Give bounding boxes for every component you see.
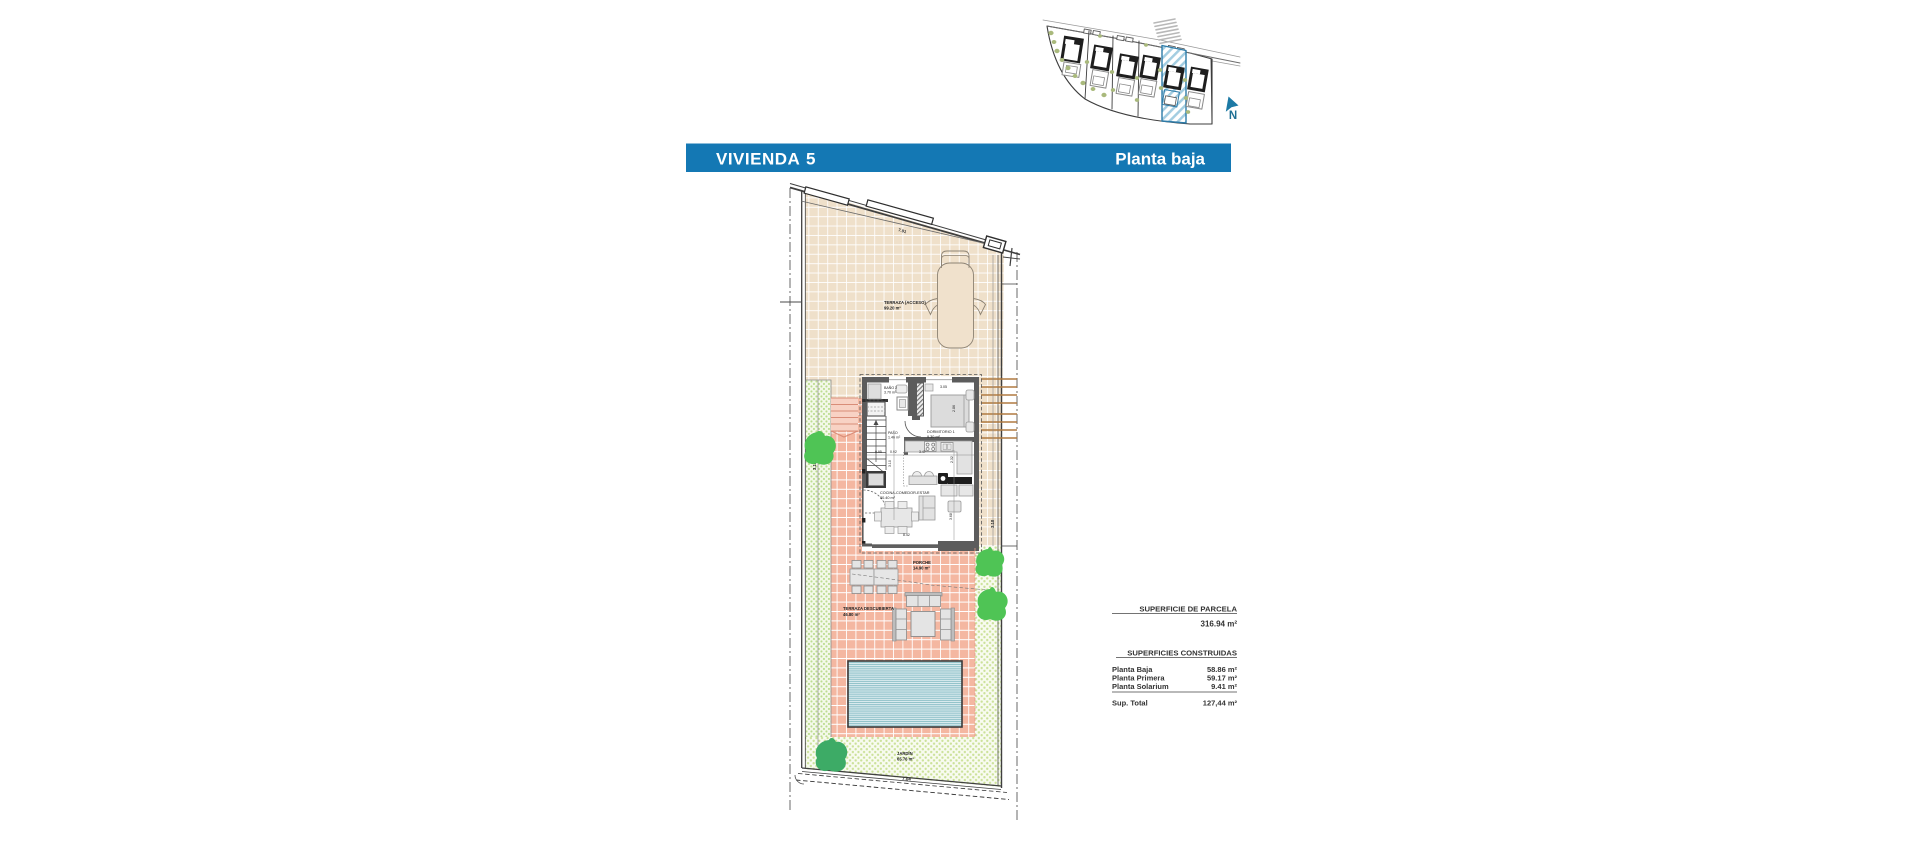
svg-text:Planta Solarium: Planta Solarium <box>1112 682 1169 691</box>
svg-text:SUPERFICIE DE PARCELA: SUPERFICIE DE PARCELA <box>1139 605 1237 614</box>
svg-text:8.42: 8.42 <box>903 533 910 537</box>
svg-text:Planta baja: Planta baja <box>1115 150 1205 169</box>
svg-text:JARDÍN: JARDÍN <box>897 751 913 756</box>
svg-text:9.41 m²: 9.41 m² <box>1211 682 1237 691</box>
svg-text:TERRAZA DESCUBIERTA: TERRAZA DESCUBIERTA <box>843 606 894 611</box>
svg-text:316.94 m²: 316.94 m² <box>1201 620 1238 629</box>
svg-text:3.05: 3.05 <box>940 385 947 389</box>
svg-text:46.80 m²: 46.80 m² <box>843 612 860 617</box>
svg-text:3.10: 3.10 <box>888 460 892 467</box>
svg-text:65.76 m²: 65.76 m² <box>897 757 914 762</box>
svg-text:PORCHE: PORCHE <box>913 560 931 565</box>
svg-text:PASO: PASO <box>888 431 898 435</box>
svg-text:0.92: 0.92 <box>890 450 897 454</box>
svg-text:2.86: 2.86 <box>952 405 956 412</box>
svg-text:SUPERFICIES CONSTRUIDAS: SUPERFICIES CONSTRUIDAS <box>1127 649 1237 658</box>
svg-text:14.90 m²: 14.90 m² <box>913 566 930 571</box>
svg-text:5: 5 <box>806 150 815 169</box>
svg-text:7.04: 7.04 <box>902 776 912 782</box>
svg-text:3.68: 3.68 <box>949 513 953 520</box>
svg-text:N: N <box>1229 110 1237 122</box>
svg-text:3.70 m²: 3.70 m² <box>884 391 897 395</box>
svg-text:BAÑO 2: BAÑO 2 <box>884 385 897 390</box>
svg-text:Sup. Total: Sup. Total <box>1112 699 1148 708</box>
svg-text:1.46 m²: 1.46 m² <box>888 436 901 440</box>
svg-text:COCINA-COMEDOR-ESTAR: COCINA-COMEDOR-ESTAR <box>880 491 930 495</box>
svg-text:99.20 m²: 99.20 m² <box>884 306 901 311</box>
svg-text:30.40 m²: 30.40 m² <box>880 496 896 500</box>
svg-text:9.30 m²: 9.30 m² <box>927 435 941 439</box>
svg-text:127,44 m²: 127,44 m² <box>1203 699 1238 708</box>
svg-text:0.95: 0.95 <box>875 450 882 454</box>
svg-text:TERRAZA (ACCESO): TERRAZA (ACCESO) <box>884 300 926 305</box>
svg-text:3.47: 3.47 <box>919 450 926 454</box>
svg-text:3.18: 3.18 <box>990 519 995 528</box>
svg-text:DORMITORIO 1: DORMITORIO 1 <box>927 430 955 434</box>
svg-text:2.32: 2.32 <box>950 456 954 463</box>
svg-text:VIVIENDA: VIVIENDA <box>716 150 800 169</box>
